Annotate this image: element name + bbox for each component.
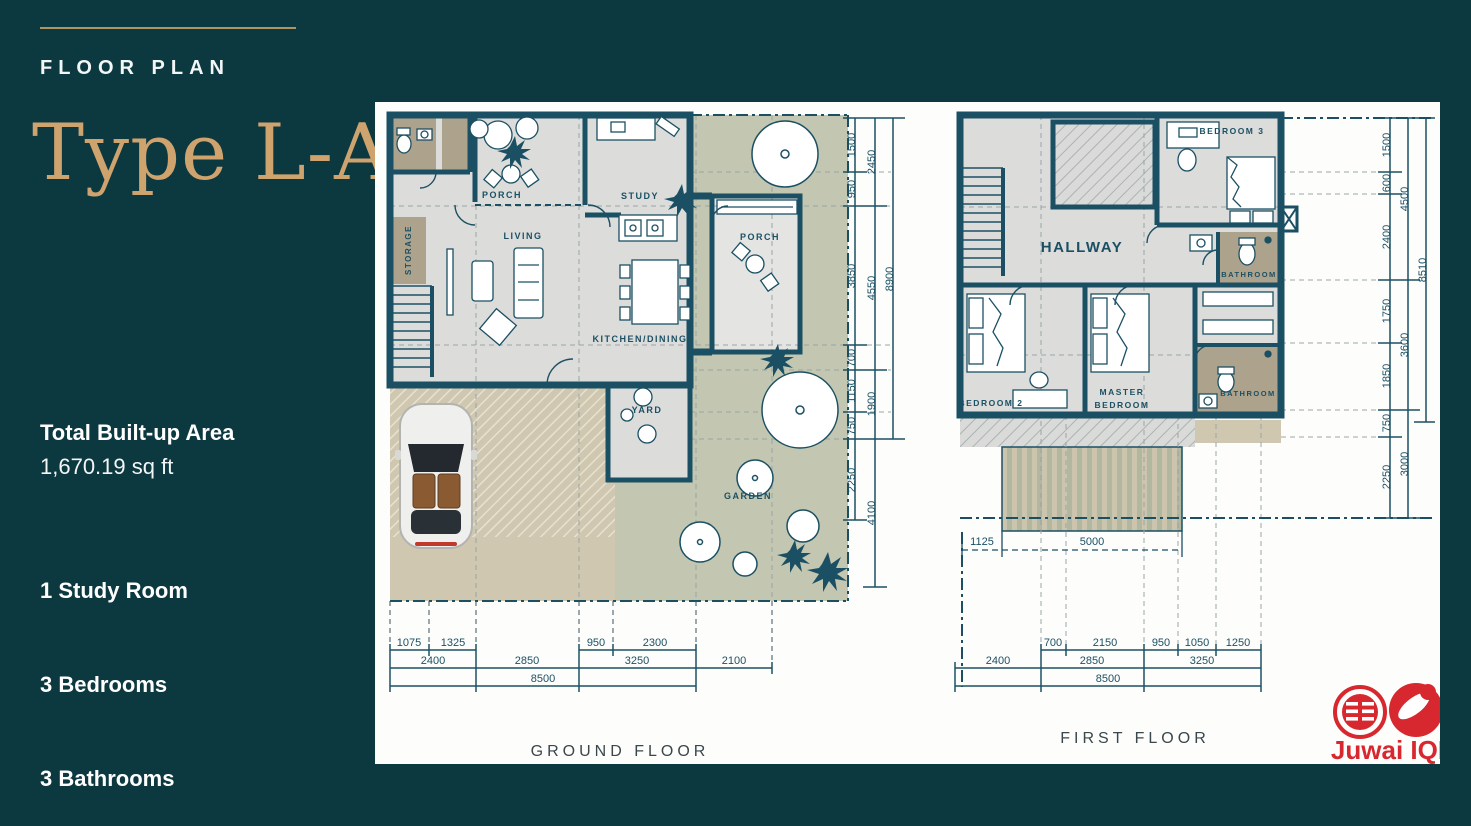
label-master-2: BEDROOM (1095, 400, 1150, 410)
unit-type-title: Type L-A (32, 108, 391, 198)
label-bedroom2: BEDROOM 2 (959, 398, 1024, 408)
label-yard: YARD (632, 405, 663, 415)
label-living: LIVING (503, 231, 542, 241)
builtup-area-value: 1,670.19 sq ft (40, 454, 173, 480)
dim: 8500 (531, 673, 555, 685)
ff-right-dim-labels: 1500 600 2400 1750 1850 750 2250 4500 36… (1381, 133, 1429, 489)
label-porch-left: PORCH (482, 190, 522, 200)
dim: 1750 (1381, 299, 1393, 323)
dim: 2300 (643, 637, 667, 649)
dim: 2850 (1080, 655, 1104, 667)
dim: 1500 (846, 133, 858, 157)
dim: 2100 (722, 655, 746, 667)
floor-plans-panel: STORAGE PORCH LIVING STUDY PORCH KITCHEN… (375, 102, 1440, 764)
roof-tan (1195, 420, 1281, 443)
dim: 8900 (884, 267, 896, 291)
dim: 1900 (866, 392, 878, 416)
dim: 2250 (1381, 465, 1393, 489)
builtup-area-label: Total Built-up Area (40, 420, 234, 446)
iqi-globe-icon (1389, 683, 1440, 737)
void-hatch (1053, 122, 1155, 207)
label-bathroom-bottom: BATHROOM (1220, 389, 1276, 398)
dim: 2450 (866, 150, 878, 174)
dim: 5000 (1080, 536, 1104, 548)
dim: 2250 (846, 468, 858, 492)
porch-right-floor (712, 196, 800, 352)
dim: 950 (587, 637, 605, 649)
dim: 3850 (846, 264, 858, 288)
store-nook-floor (442, 118, 468, 172)
floor-plans-drawing: STORAGE PORCH LIVING STUDY PORCH KITCHEN… (375, 102, 1440, 764)
gf-right-dim-labels: 1500 950 3850 700 1150 750 2250 2450 455… (846, 133, 896, 525)
label-hallway: HALLWAY (1041, 239, 1123, 256)
dim: 750 (1381, 414, 1393, 432)
dim: 2400 (421, 655, 445, 667)
feature-bathrooms: 3 Bathrooms (40, 766, 174, 792)
ff-bottom-dim-labels: 700 2150 950 1050 1250 2400 2850 3250 85… (986, 637, 1250, 685)
gold-divider-line (40, 27, 296, 29)
label-bathroom-top: BATHROOM (1221, 270, 1277, 279)
dim: 1250 (1226, 637, 1250, 649)
dim: 3250 (625, 655, 649, 667)
label-master-1: MASTER (1100, 387, 1145, 397)
gf-bottom-dim-labels: 1075 1325 950 2300 2400 2850 3250 2100 8… (397, 637, 746, 685)
label-storage: STORAGE (404, 225, 413, 275)
floor-plan-sheet: { "sidebar": { "header": "FLOOR PLAN", "… (0, 0, 1471, 826)
dim: 700 (846, 349, 858, 367)
gf-bottom-dim-lines (390, 644, 772, 692)
feature-study-room: 1 Study Room (40, 578, 188, 604)
label-porch-right: PORCH (740, 232, 780, 242)
juwai-seal-icon (1335, 687, 1385, 737)
dim: 950 (846, 180, 858, 198)
label-kitchen-dining: KITCHEN/DINING (593, 334, 688, 344)
brand-wordmark: Juwai IQI (1331, 735, 1440, 764)
dim: 8500 (1096, 673, 1120, 685)
roof-strip (960, 418, 1195, 447)
ff-balcony-dim-lines (962, 531, 1182, 557)
dim: 4550 (866, 276, 878, 300)
dim: 4100 (866, 501, 878, 525)
dim: 750 (846, 417, 858, 435)
feature-bedrooms: 3 Bedrooms (40, 672, 167, 698)
label-bedroom3: BEDROOM 3 (1200, 126, 1265, 136)
dim: 3250 (1190, 655, 1214, 667)
dim: 1850 (1381, 364, 1393, 388)
dim: 1125 (970, 536, 994, 548)
dim: 2150 (1093, 637, 1117, 649)
dim: 2850 (515, 655, 539, 667)
dim: 3600 (1399, 333, 1411, 357)
dim: 2400 (1381, 225, 1393, 249)
dim: 1325 (441, 637, 465, 649)
dim: 1075 (397, 637, 421, 649)
ground-floor-title: GROUND FLOOR (531, 743, 710, 760)
dim: 1150 (846, 379, 858, 403)
dim: 2400 (986, 655, 1010, 667)
dim: 1500 (1381, 133, 1393, 157)
first-floor-title: FIRST FLOOR (1060, 730, 1210, 747)
ground-floor-plan: STORAGE PORCH LIVING STUDY PORCH KITCHEN… (390, 115, 905, 760)
car (395, 404, 477, 548)
dim: 600 (1381, 174, 1393, 192)
dim: 3000 (1399, 452, 1411, 476)
dim: 1050 (1185, 637, 1209, 649)
dim: 950 (1152, 637, 1170, 649)
label-study: STUDY (621, 191, 659, 201)
juwai-iqi-logo: Juwai IQI (1331, 683, 1440, 764)
first-floor-plan: BEDROOM 3 HALLWAY BATHROOM BEDROOM 2 MAS… (955, 115, 1435, 747)
dim: 4500 (1399, 187, 1411, 211)
dim: 700 (1044, 637, 1062, 649)
dim: 8510 (1417, 258, 1429, 282)
label-garden: GARDEN (724, 491, 772, 501)
page-title: FLOOR PLAN (40, 57, 230, 80)
